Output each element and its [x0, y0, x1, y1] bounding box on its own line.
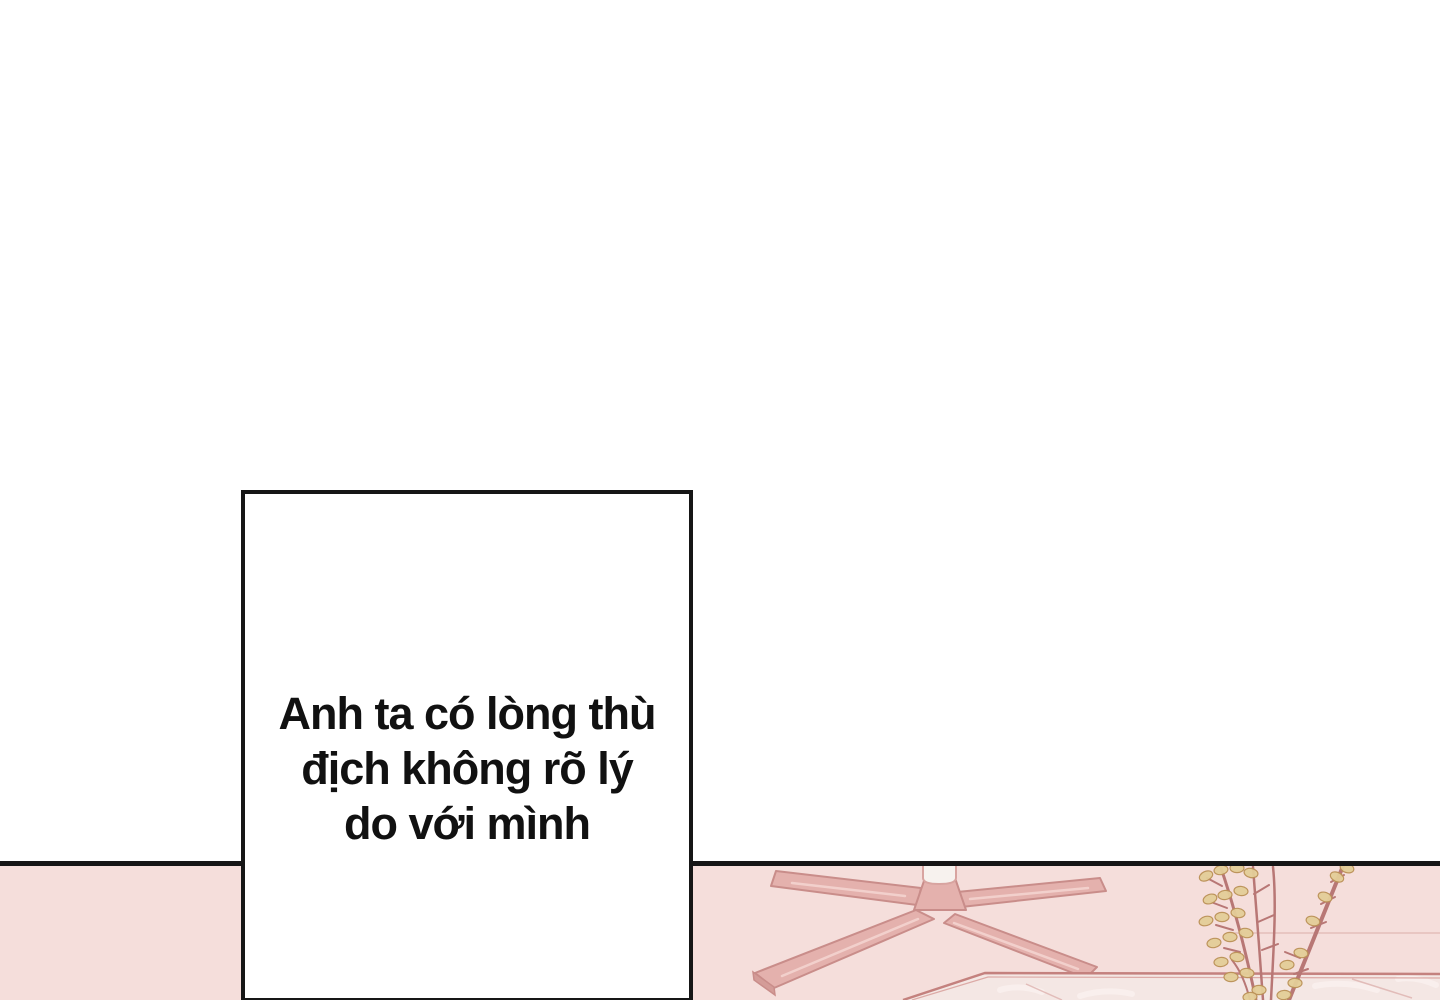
plant-branch [1254, 885, 1269, 894]
comic-panel: Anh ta có lòng thù địch không rõ lý do v… [0, 0, 1440, 1000]
plant-leaf [1230, 866, 1244, 873]
plant-leaf [1215, 912, 1229, 921]
plant-leaf [1230, 907, 1245, 918]
dialogue-line-1: Anh ta có lòng thù [245, 686, 689, 741]
plant-leaf [1198, 915, 1214, 928]
plant-leaf [1223, 932, 1237, 941]
plant-branch [1262, 944, 1278, 950]
chair-leg-highlight [782, 919, 918, 976]
plant-leaf [1288, 978, 1302, 988]
plant-branch [1224, 948, 1240, 952]
plant-branch [1216, 925, 1233, 930]
floor-scene [0, 866, 1440, 1000]
plant-leaf [1277, 990, 1292, 1000]
marble-table [903, 973, 1440, 1000]
plant-leaf [1213, 866, 1228, 876]
dialogue-text: Anh ta có lòng thù địch không rõ lý do v… [245, 686, 689, 851]
plant-leaf [1206, 937, 1221, 948]
chair-leg-highlight [954, 923, 1078, 969]
plant-leaf [1224, 972, 1238, 981]
plant-branch [1258, 915, 1274, 922]
speech-box: Anh ta có lòng thù địch không rõ lý do v… [241, 490, 693, 1000]
plant-leaf [1234, 886, 1249, 897]
dialogue-line-3: do với mình [245, 796, 689, 851]
floor-strip [0, 861, 1440, 1000]
plant-leaf [1280, 960, 1295, 971]
plant-leaf [1243, 867, 1259, 879]
plant-leaf [1214, 957, 1229, 968]
chair-column [923, 866, 956, 884]
dialogue-line-2: địch không rõ lý [245, 741, 689, 796]
